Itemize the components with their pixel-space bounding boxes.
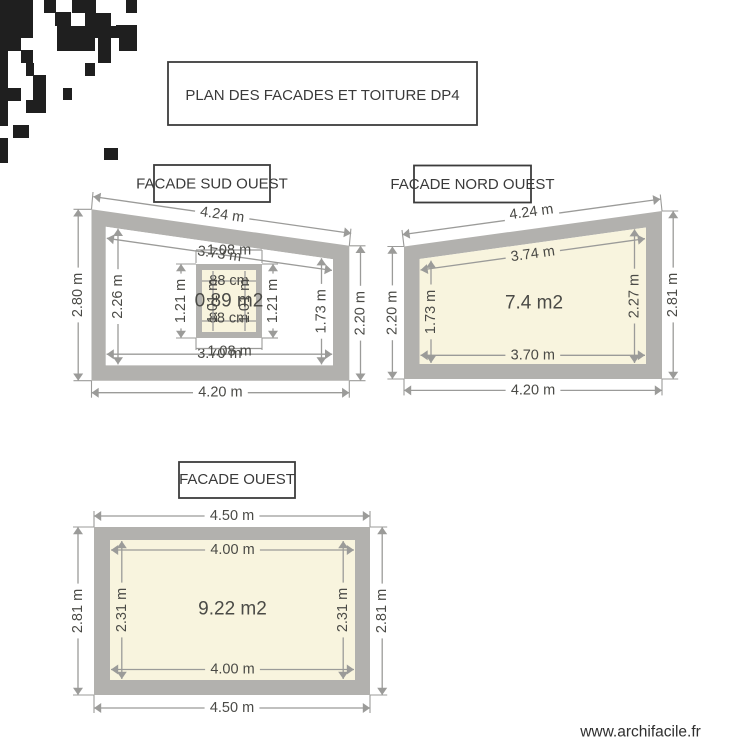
svg-text:2.27 m: 2.27 m: [627, 274, 643, 318]
svg-text:1.73 m: 1.73 m: [423, 290, 439, 334]
svg-text:www.archifacile.fr: www.archifacile.fr: [579, 724, 701, 741]
svg-text:4.00 m: 4.00 m: [210, 542, 254, 558]
svg-text:9.22 m2: 9.22 m2: [198, 599, 267, 620]
svg-text:0.89 m2: 0.89 m2: [195, 291, 264, 312]
svg-text:4.50 m: 4.50 m: [210, 508, 254, 524]
svg-text:4.00 m: 4.00 m: [210, 662, 254, 678]
svg-text:FACADE OUEST: FACADE OUEST: [179, 471, 295, 488]
svg-text:4.50 m: 4.50 m: [210, 700, 254, 716]
svg-text:2.81 m: 2.81 m: [665, 273, 681, 317]
svg-text:2.81 m: 2.81 m: [70, 589, 86, 633]
svg-text:FACADE NORD OUEST: FACADE NORD OUEST: [390, 176, 554, 193]
svg-text:1.21 m: 1.21 m: [173, 279, 189, 323]
svg-text:7.4 m2: 7.4 m2: [505, 293, 563, 314]
svg-text:2.31 m: 2.31 m: [114, 588, 130, 632]
svg-text:FACADE SUD OUEST: FACADE SUD OUEST: [136, 176, 288, 193]
svg-text:1.21 m: 1.21 m: [265, 279, 281, 323]
svg-text:4.20 m: 4.20 m: [198, 385, 242, 401]
svg-text:2.20 m: 2.20 m: [353, 291, 369, 335]
svg-text:2.81 m: 2.81 m: [374, 589, 390, 633]
svg-text:1.08 m: 1.08 m: [207, 344, 251, 360]
svg-text:1.08 m: 1.08 m: [207, 243, 251, 259]
svg-text:PLAN DES FACADES ET TOITURE DP: PLAN DES FACADES ET TOITURE DP4: [185, 87, 459, 104]
svg-text:2.80 m: 2.80 m: [70, 273, 86, 317]
svg-text:2.20 m: 2.20 m: [384, 291, 400, 335]
svg-text:4.20 m: 4.20 m: [511, 382, 555, 398]
svg-text:2.31 m: 2.31 m: [335, 588, 351, 632]
svg-text:2.26 m: 2.26 m: [110, 274, 126, 318]
svg-text:3.70 m: 3.70 m: [511, 347, 555, 363]
svg-text:1.73 m: 1.73 m: [314, 289, 330, 333]
